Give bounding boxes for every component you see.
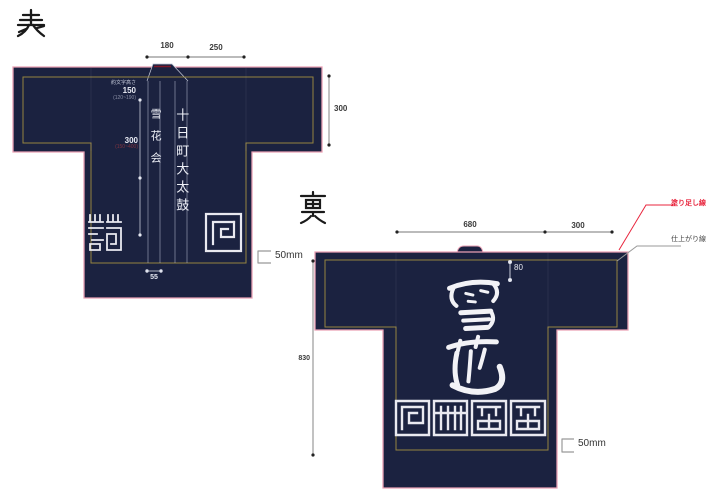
back-width-dim: 680 <box>455 221 485 230</box>
back-sleeve-dim: 300 <box>564 222 592 231</box>
spec-drawing <box>0 0 710 500</box>
front-offset-bracket-icon <box>258 251 271 263</box>
back-coat-outline <box>315 252 628 488</box>
front-lapel-width-dim-label: 55 <box>146 274 162 282</box>
finish-line-label: 仕上がり線 <box>666 236 706 244</box>
back-coat <box>315 246 628 488</box>
happi-coat-spec-sheet: 表 裏 雪花 180 250 300 約文字高さ 150 (120~190) 3… <box>0 0 710 500</box>
back-offset-label: 50mm <box>578 438 606 449</box>
front-body-offset-range: (150~400) <box>100 145 138 151</box>
front-offset-label: 50mm <box>275 250 303 261</box>
front-shoulder-dim: 250 <box>204 44 228 53</box>
front-lapel-left-text: 雪花会 <box>149 108 161 180</box>
bleed-line-label: 塗り足し線 <box>666 200 706 208</box>
front-char-height-range: (120~190) <box>104 96 136 102</box>
back-side-glyph <box>301 192 325 223</box>
front-collar-width-dim: 180 <box>155 42 179 51</box>
front-side-glyph <box>18 10 44 36</box>
bleed-line-leader <box>619 205 673 250</box>
front-coat <box>13 64 322 298</box>
back-top-margin-dim-label: 80 <box>514 264 523 273</box>
back-height-dim: 830 <box>288 355 310 363</box>
front-lapel-right-text: 十日町大太鼓 <box>174 108 188 228</box>
front-sleeve-depth-dim: 300 <box>334 105 347 114</box>
back-offset-bracket-icon <box>562 439 574 452</box>
